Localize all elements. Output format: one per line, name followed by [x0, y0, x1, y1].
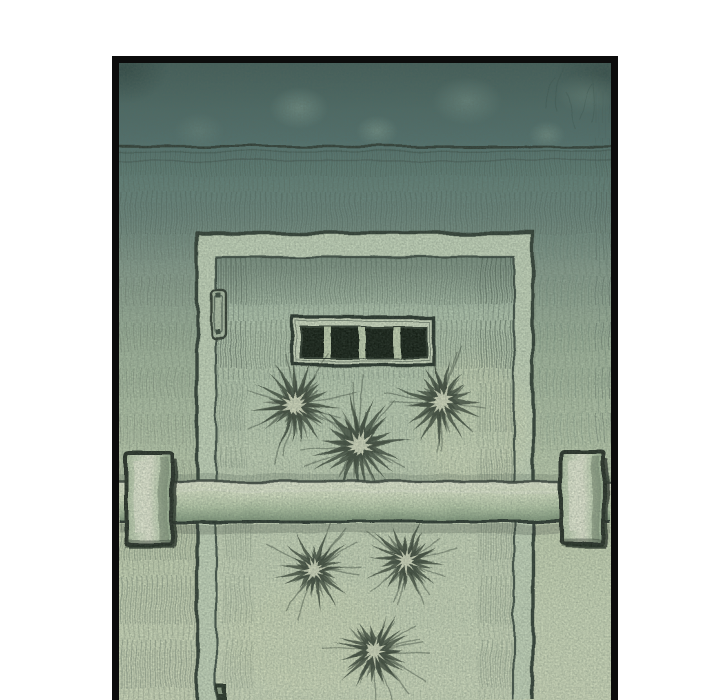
- grain-overlay: [119, 63, 611, 700]
- comic-panel: [112, 56, 618, 700]
- door-artwork: [119, 63, 611, 700]
